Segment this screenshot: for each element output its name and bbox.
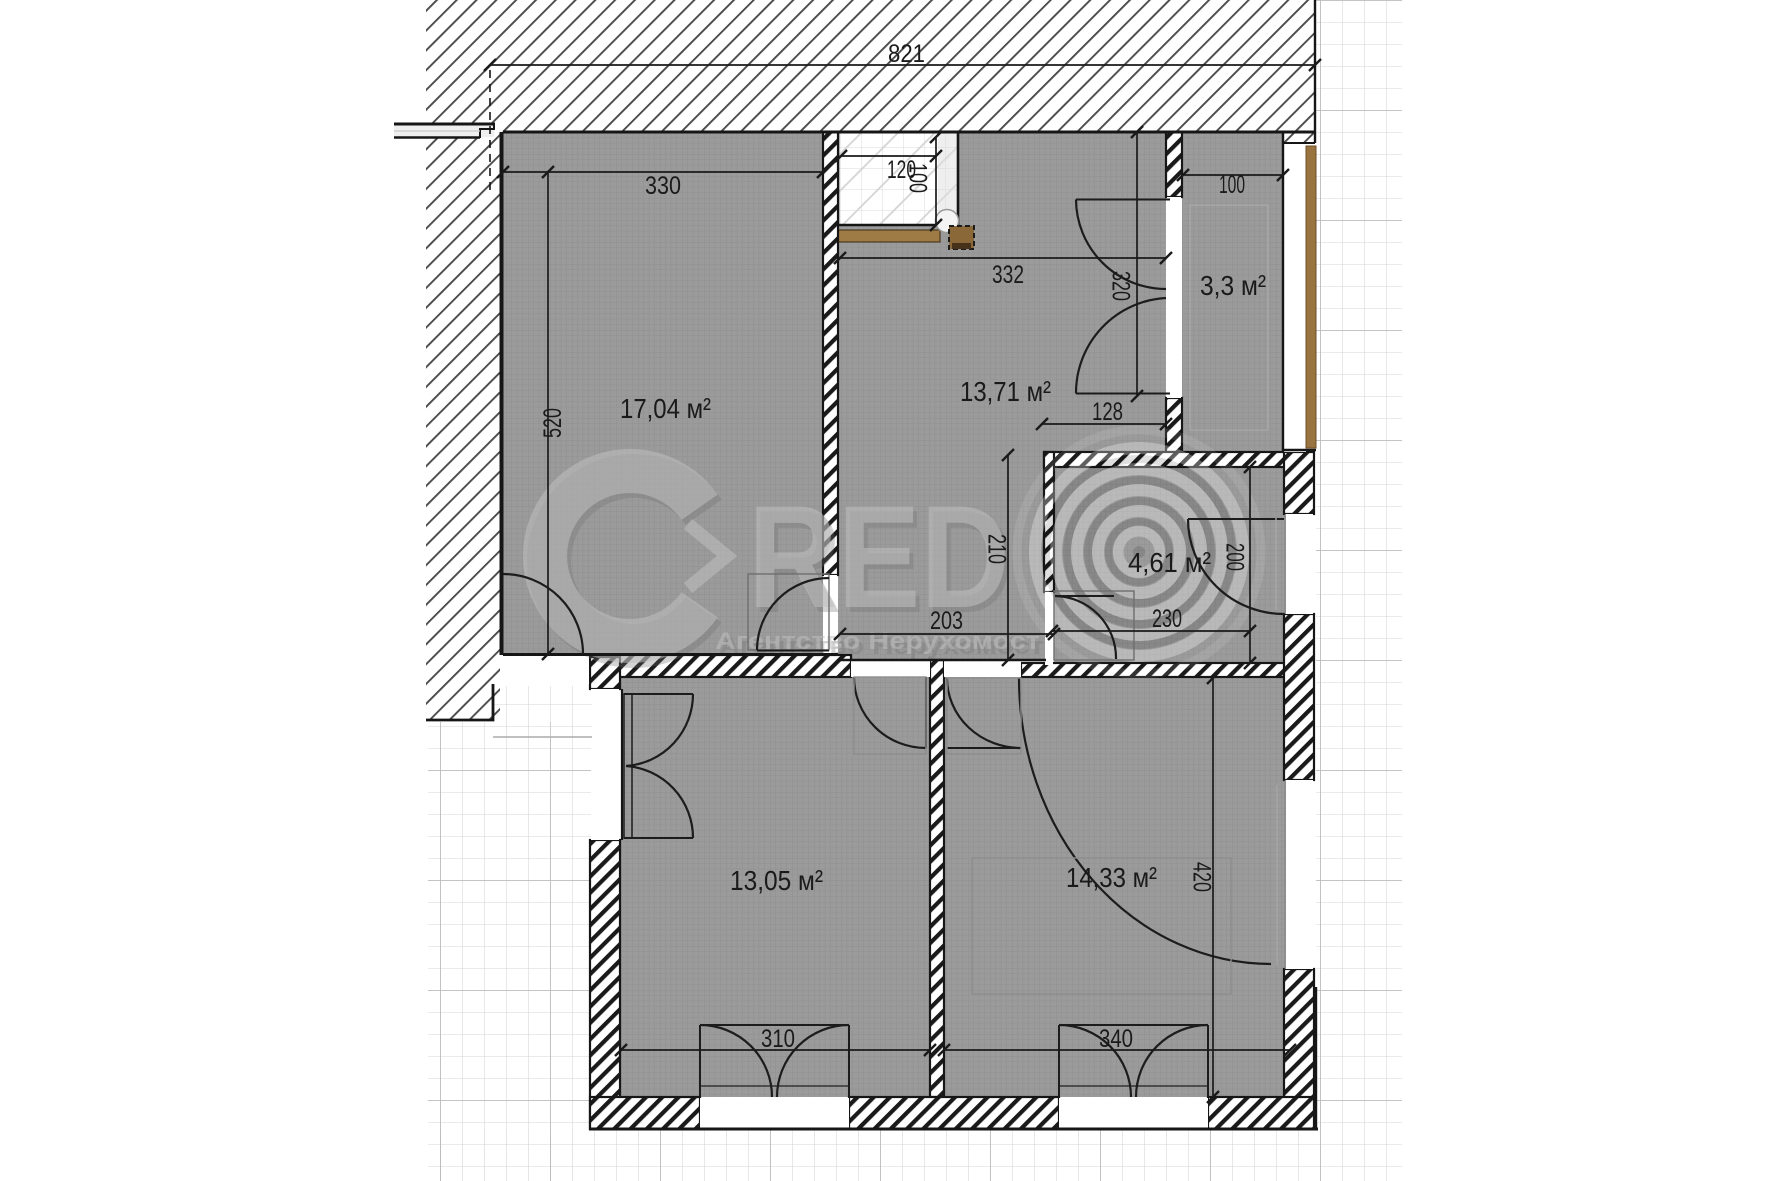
svg-text:821: 821 [888, 40, 925, 68]
svg-text:14,33 м²: 14,33 м² [1066, 862, 1157, 893]
svg-text:330: 330 [645, 172, 681, 200]
svg-text:100: 100 [903, 163, 931, 193]
svg-text:3,3 м²: 3,3 м² [1200, 270, 1266, 301]
svg-text:200: 200 [1220, 543, 1248, 571]
svg-text:210: 210 [982, 534, 1010, 564]
svg-text:128: 128 [1092, 398, 1123, 426]
svg-text:230: 230 [1152, 605, 1182, 633]
svg-text:332: 332 [992, 261, 1024, 289]
svg-text:310: 310 [761, 1025, 795, 1053]
svg-text:520: 520 [539, 408, 567, 438]
svg-text:4,61 м²: 4,61 м² [1128, 547, 1211, 578]
svg-text:13,71 м²: 13,71 м² [960, 376, 1051, 407]
svg-text:340: 340 [1099, 1025, 1133, 1053]
svg-text:420: 420 [1187, 862, 1215, 892]
svg-text:100: 100 [1219, 171, 1245, 199]
svg-text:RED: RED [748, 475, 1010, 638]
svg-text:203: 203 [930, 607, 963, 635]
svg-text:320: 320 [1106, 271, 1134, 301]
svg-text:13,05 м²: 13,05 м² [730, 865, 823, 896]
svg-text:17,04 м²: 17,04 м² [620, 393, 711, 424]
